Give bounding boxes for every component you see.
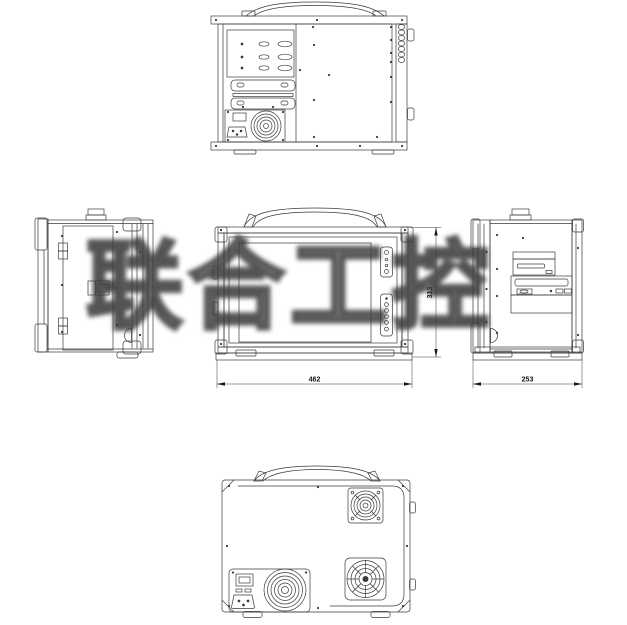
rear-frame	[38, 219, 48, 352]
corner-bumper	[471, 323, 480, 353]
foot	[243, 612, 262, 618]
edge-tab	[410, 502, 416, 513]
chassis-drawing: 462 253 313	[0, 0, 627, 625]
top-rail	[218, 227, 408, 233]
front-frame	[473, 220, 490, 352]
handle-end	[512, 209, 529, 215]
latch-tab	[213, 266, 218, 279]
bottom-rail	[211, 142, 407, 150]
front-view	[213, 208, 413, 360]
side-latch	[408, 29, 415, 41]
corner-bumper	[471, 219, 480, 249]
foot	[372, 150, 394, 154]
exhaust-fan-bottom	[345, 558, 386, 600]
screw-dots	[226, 485, 408, 609]
voltage-switch	[236, 574, 253, 586]
screw-dots	[220, 229, 406, 345]
foot	[234, 150, 256, 154]
inner-panel-outline	[238, 486, 404, 606]
ac-inlet	[232, 595, 255, 609]
bracket-bars	[231, 80, 295, 109]
left-side-view	[35, 209, 153, 358]
display-bezel	[224, 233, 402, 347]
card-slot-column	[396, 24, 407, 142]
screw-dots	[61, 231, 141, 336]
dimensions: 462 253 313	[217, 228, 582, 389]
blank-bay-panel	[511, 295, 572, 313]
dimension-side-depth: 253	[473, 360, 582, 388]
top-view	[211, 2, 414, 154]
screw-dots	[485, 234, 579, 336]
rear-frame	[572, 220, 582, 352]
power-supply-top	[225, 110, 285, 142]
corner-bumper	[35, 324, 47, 352]
floppy-drive	[513, 252, 555, 275]
drive-cage	[227, 30, 294, 77]
back-view	[222, 466, 416, 618]
psu-fan-grille	[251, 111, 281, 141]
handle-top-view	[246, 2, 384, 16]
power-supply-back	[229, 569, 310, 612]
lcd-screen	[239, 243, 371, 342]
power-switch	[233, 113, 246, 121]
front-width-value: 462	[309, 377, 321, 384]
top-rail	[211, 16, 407, 24]
handle-cutout	[491, 329, 498, 343]
side-depth-value: 253	[522, 377, 534, 384]
door-latch	[88, 281, 109, 295]
handle-end	[88, 209, 104, 215]
cdrom-drive	[511, 276, 572, 295]
foot	[371, 612, 390, 618]
psu-fan-grille	[264, 569, 306, 611]
edge-tab	[410, 579, 416, 590]
chassis-body-top	[218, 24, 392, 142]
foot	[117, 352, 138, 358]
osd-button-panel	[381, 294, 393, 336]
corner-bumper	[35, 218, 47, 250]
handle-back-view	[254, 466, 380, 481]
front-height-value: 313	[427, 287, 434, 299]
right-side-view	[471, 209, 584, 360]
latch-tab	[213, 302, 218, 315]
exhaust-fan-top	[348, 488, 383, 523]
handle-cutout	[125, 329, 132, 343]
dimension-front-height: 313	[410, 228, 441, 358]
corner-pad	[401, 227, 413, 242]
dimension-front-width: 462	[217, 360, 412, 388]
technical-drawing-canvas: 462 253 313 联合工控	[0, 0, 627, 625]
led-panel	[381, 247, 393, 277]
side-latch	[408, 108, 415, 120]
